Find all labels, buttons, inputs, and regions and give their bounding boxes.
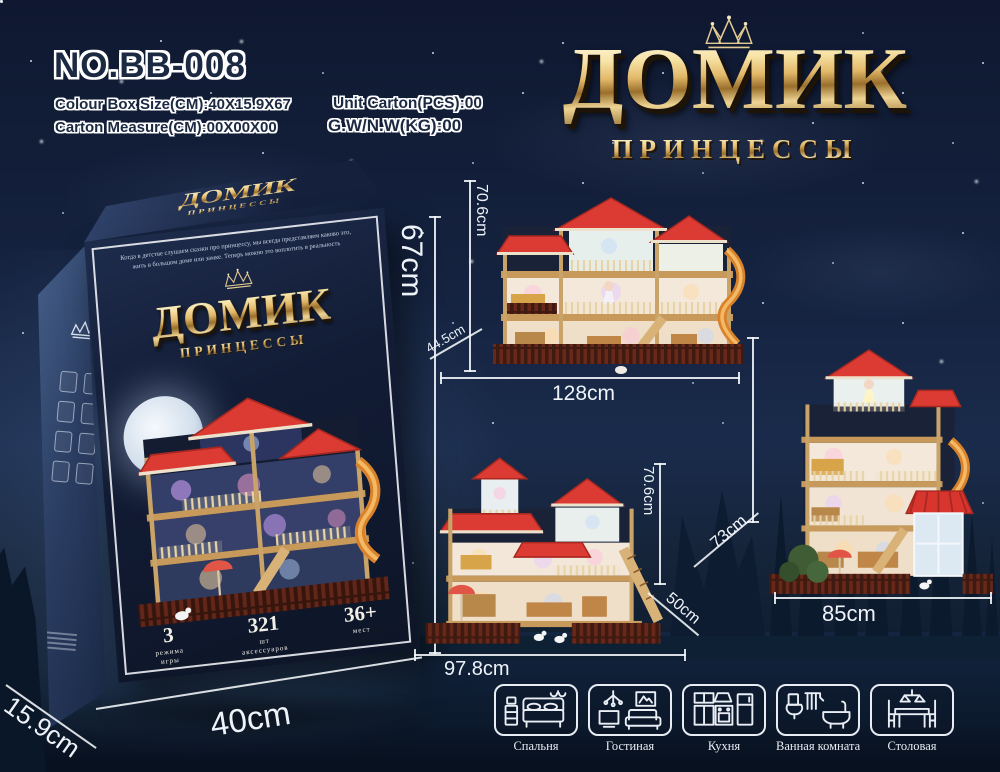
dollhouse-large-photo bbox=[488, 186, 754, 382]
room-living-room: Гостиная bbox=[588, 684, 672, 754]
dollhouse-box-art bbox=[104, 366, 407, 636]
spec-carton-measure: Carton Measure(CM):00X00X00 bbox=[55, 119, 277, 136]
cloud-haze bbox=[740, 220, 1000, 320]
bedroom-icon bbox=[502, 689, 570, 731]
dollhouse-tall-photo bbox=[763, 344, 995, 596]
feature-badge-icon bbox=[51, 460, 70, 482]
dining-room-icon bbox=[878, 689, 946, 731]
dollhouse-medium-photo bbox=[418, 452, 668, 658]
room-label: Спальня bbox=[494, 739, 578, 754]
kitchen-icon bbox=[690, 689, 758, 731]
room-card bbox=[682, 684, 766, 736]
room-label: Гостиная bbox=[588, 739, 672, 754]
room-card bbox=[870, 684, 954, 736]
feature-badge-icon bbox=[78, 433, 97, 455]
feature-modes: 3 режима игры bbox=[153, 623, 185, 667]
box-artwork bbox=[104, 366, 407, 636]
bathroom-icon bbox=[784, 689, 852, 731]
room-card bbox=[588, 684, 672, 736]
dimension-large-width: 128cm bbox=[552, 382, 615, 406]
feature-accessories: 321 шт аксессуаров bbox=[239, 611, 289, 657]
dimension-line-medium-height bbox=[659, 463, 661, 585]
spec-gross-net-weight: G.W/N.W(KG):00 bbox=[328, 116, 461, 136]
living-room-icon bbox=[596, 689, 664, 731]
room-card bbox=[776, 684, 860, 736]
title-main: ДОМИК bbox=[500, 36, 970, 124]
dimension-box-height: 67cm bbox=[394, 224, 428, 297]
model-number: NO.BB-008 bbox=[54, 46, 246, 86]
feature-badge-icon bbox=[59, 371, 78, 393]
room-bedroom: Спальня bbox=[494, 684, 578, 754]
dimension-line-medium-width bbox=[414, 654, 686, 656]
feature-badge-icon bbox=[75, 462, 94, 484]
box-front-face: Когда в детстве слушаем сказки про принц… bbox=[84, 208, 419, 683]
product-box: ДОМИК ПРИНЦЕССЫ bbox=[26, 150, 456, 760]
dimension-large-height: 70.6cm bbox=[472, 184, 490, 236]
dimension-tall-width: 85cm bbox=[822, 601, 876, 627]
feature-badge-icon bbox=[54, 430, 73, 452]
dimension-line-large-width bbox=[440, 377, 740, 379]
starfield-bright bbox=[0, 0, 3, 3]
box-top-logo: ДОМИК ПРИНЦЕССЫ bbox=[140, 169, 334, 224]
room-label: Столовая bbox=[870, 739, 954, 754]
room-card bbox=[494, 684, 578, 736]
dimension-medium-height: 70.6cm bbox=[640, 466, 657, 515]
product-poster: NO.BB-008 Colour Box Size(CM):40X15.9X67… bbox=[0, 0, 1000, 772]
feature-age: 36+ мест bbox=[343, 601, 379, 646]
title-sub: ПРИНЦЕССЫ bbox=[505, 134, 965, 165]
room-legend: Спальня Гостиная bbox=[494, 684, 954, 754]
room-label: Кухня bbox=[682, 739, 766, 754]
dimension-line-tall-height bbox=[752, 337, 754, 523]
side-fine-print bbox=[32, 630, 83, 651]
room-bathroom: Ванная комната bbox=[776, 684, 860, 754]
room-dining-room: Столовая bbox=[870, 684, 954, 754]
dimension-medium-width: 97.8cm bbox=[444, 658, 510, 681]
spec-box-size: Colour Box Size(CM):40X15.9X67 bbox=[55, 96, 291, 113]
spec-unit-carton: Unit Carton(PCS):00 bbox=[333, 95, 482, 113]
room-label: Ванная комната bbox=[776, 739, 860, 754]
dimension-line-large-height bbox=[469, 180, 471, 372]
feature-badge-icon bbox=[56, 401, 75, 423]
dimension-line-tall-width bbox=[774, 597, 992, 599]
room-kitchen: Кухня bbox=[682, 684, 766, 754]
